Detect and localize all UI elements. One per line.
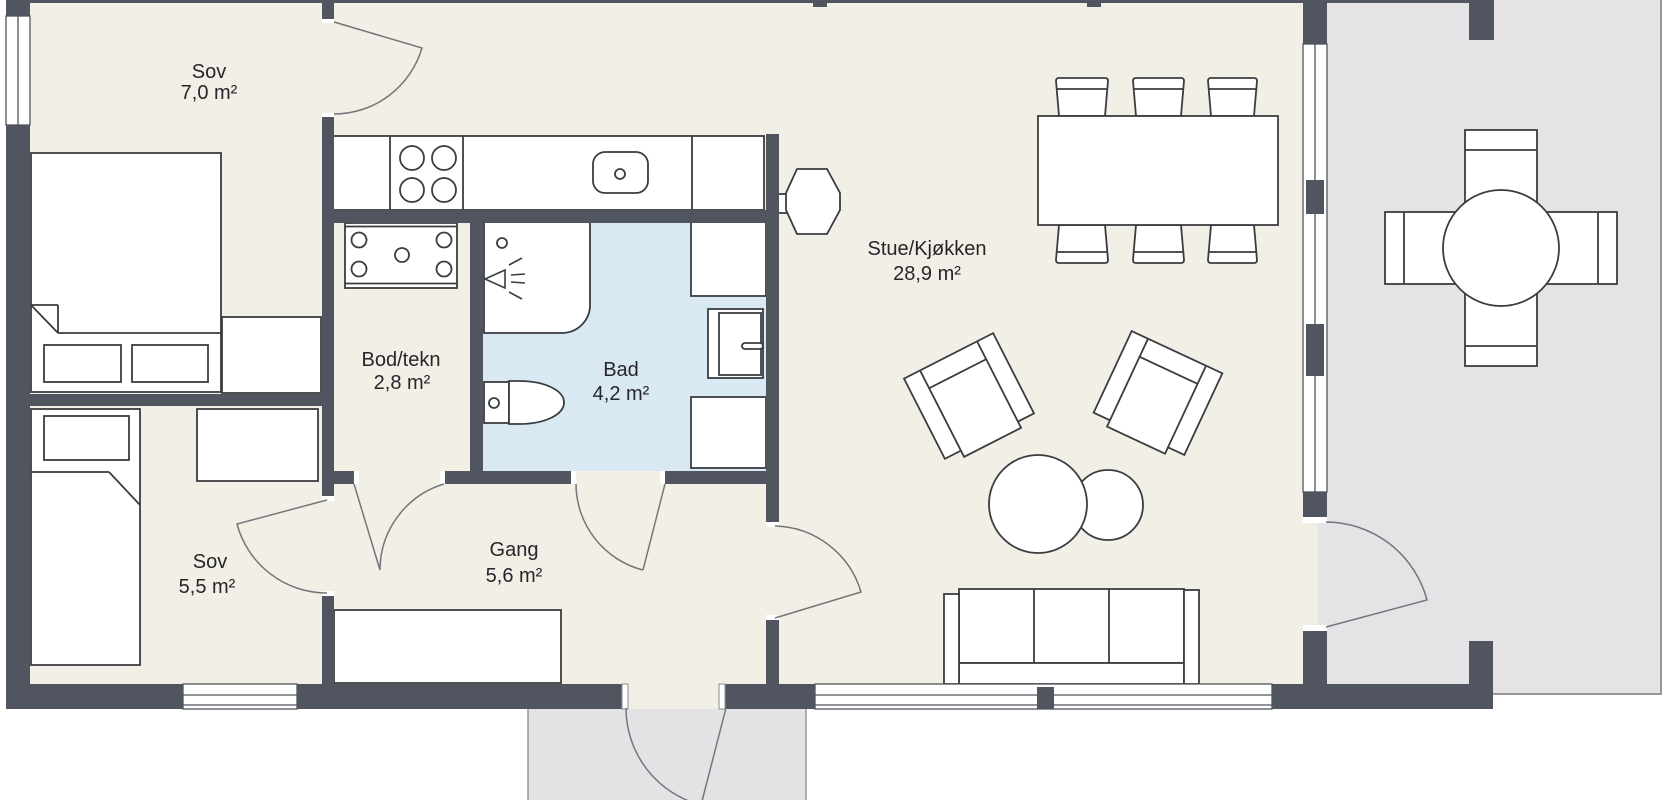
svg-text:Sov: Sov <box>193 551 227 573</box>
svg-text:Bad: Bad <box>603 359 639 381</box>
svg-text:2,8 m²: 2,8 m² <box>374 372 431 394</box>
svg-text:5,5 m²: 5,5 m² <box>179 576 236 598</box>
svg-text:Stue/Kjøkken: Stue/Kjøkken <box>868 238 987 260</box>
svg-text:4,2 m²: 4,2 m² <box>593 383 650 405</box>
svg-text:Gang: Gang <box>490 539 539 561</box>
svg-text:5,6 m²: 5,6 m² <box>486 565 543 587</box>
svg-text:Bod/tekn: Bod/tekn <box>362 349 441 371</box>
svg-text:Sov: Sov <box>192 61 226 83</box>
svg-text:7,0 m²: 7,0 m² <box>181 82 238 104</box>
svg-text:28,9 m²: 28,9 m² <box>893 263 961 285</box>
